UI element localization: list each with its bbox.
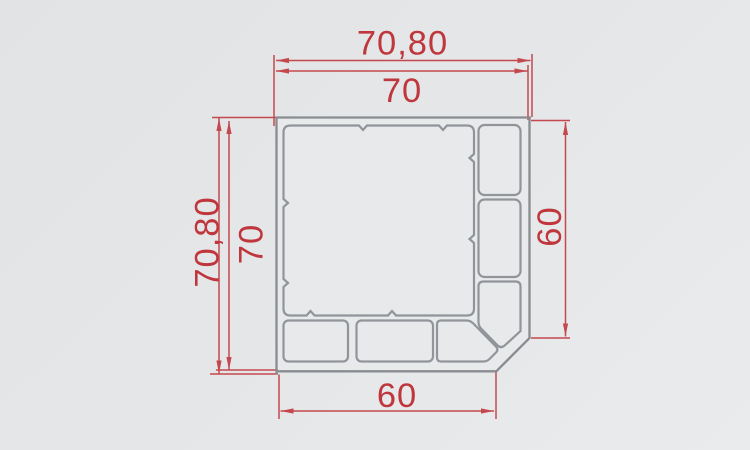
svg-text:60: 60 xyxy=(377,377,417,415)
svg-text:70: 70 xyxy=(382,72,422,110)
svg-text:70,80: 70,80 xyxy=(357,25,448,63)
svg-text:60: 60 xyxy=(531,206,569,246)
svg-text:70,80: 70,80 xyxy=(189,196,227,287)
svg-text:70: 70 xyxy=(233,224,271,264)
